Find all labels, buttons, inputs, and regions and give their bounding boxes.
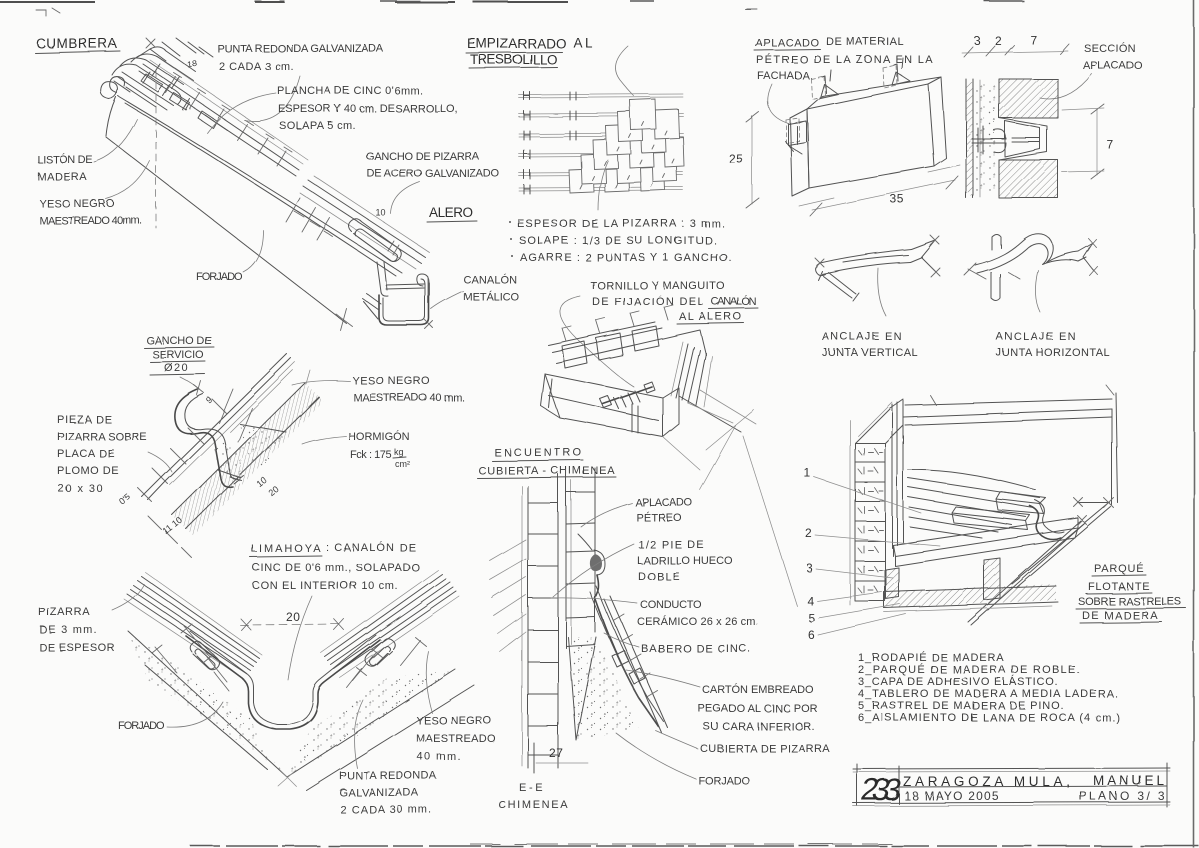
svg-text:CHIMENEA: CHIMENEA <box>498 799 568 811</box>
svg-text:APLACADO: APLACADO <box>1083 60 1143 72</box>
svg-text:7: 7 <box>1030 33 1037 47</box>
svg-text:APLACADO: APLACADO <box>755 37 819 49</box>
svg-text:2 CADA 3 cm.: 2 CADA 3 cm. <box>219 61 294 73</box>
svg-text:35: 35 <box>890 192 905 206</box>
svg-text:FORJADO: FORJADO <box>698 775 750 787</box>
svg-text:3: 3 <box>806 561 813 575</box>
svg-text:PIZARRA: PIZARRA <box>38 606 90 618</box>
svg-text:DE ACERO GALVANIZADO: DE ACERO GALVANIZADO <box>367 168 500 180</box>
svg-text:CON EL INTERIOR 10 cm.: CON EL INTERIOR 10 cm. <box>252 580 398 592</box>
svg-text:25: 25 <box>729 152 744 166</box>
svg-text:2: 2 <box>805 526 812 540</box>
svg-text:1: 1 <box>804 466 811 480</box>
svg-text:ESPESOR DE LA PIZARRA : 3 mm.: ESPESOR DE LA PIZARRA : 3 mm. <box>517 218 725 230</box>
svg-text:CUMBRERA: CUMBRERA <box>36 36 118 51</box>
svg-text:7: 7 <box>1106 137 1113 151</box>
svg-text:DE MADERA: DE MADERA <box>1082 610 1158 622</box>
svg-text:2 CADA 30 mm.: 2 CADA 30 mm. <box>340 804 432 816</box>
svg-text:CANALÓN: CANALÓN <box>711 295 757 308</box>
svg-text:PUNTA REDONDA GALVANIZADA: PUNTA REDONDA GALVANIZADA <box>217 43 384 55</box>
svg-text:JUNTA HORIZONTAL: JUNTA HORIZONTAL <box>996 347 1110 359</box>
svg-text:DE FIJACIÓN DEL: DE FIJACIÓN DEL <box>592 295 704 308</box>
svg-text:: CANALÓN DE: : CANALÓN DE <box>326 541 416 554</box>
svg-text:GANCHO DE: GANCHO DE <box>146 335 212 347</box>
svg-text:PIEZA DE: PIEZA DE <box>57 414 112 426</box>
svg-text:PEGADO AL CINC POR: PEGADO AL CINC POR <box>698 703 818 715</box>
svg-text:CANALÓN: CANALÓN <box>463 273 517 286</box>
svg-text:FORJADO: FORJADO <box>196 271 243 283</box>
svg-text:PLANO 3/ 3: PLANO 3/ 3 <box>1079 789 1165 803</box>
svg-text:20 x 30: 20 x 30 <box>58 483 103 495</box>
svg-text:E-E: E-E <box>519 782 543 794</box>
svg-text:FLOTANTE: FLOTANTE <box>1088 581 1150 593</box>
svg-text:Fck : 175: Fck : 175 <box>350 449 392 461</box>
svg-text:DE ESPESOR: DE ESPESOR <box>39 642 115 654</box>
svg-text:PLACA DE: PLACA DE <box>57 448 115 460</box>
svg-text:TORNILLO Y MANGUITO: TORNILLO Y MANGUITO <box>590 280 725 292</box>
svg-text:YESO NEGRO: YESO NEGRO <box>39 198 115 210</box>
svg-text:HORMIGÓN: HORMIGÓN <box>348 430 410 443</box>
svg-text:ESPESOR Y 40 cm. DESARROLLO,: ESPESOR Y 40 cm. DESARROLLO, <box>278 103 458 115</box>
svg-text:5_RASTREL DE MADERA DE PINO.: 5_RASTREL DE MADERA DE PINO. <box>858 700 1064 712</box>
svg-text:4: 4 <box>807 594 814 608</box>
svg-text:AGARRE : 2 PUNTAS Y 1 GANCHO.: AGARRE : 2 PUNTAS Y 1 GANCHO. <box>520 252 732 264</box>
svg-text:1/2 PIE DE: 1/2 PIE DE <box>638 539 704 551</box>
svg-text:TRESBOLILLO: TRESBOLILLO <box>470 52 558 67</box>
svg-text:BABERO DE CINC.: BABERO DE CINC. <box>641 643 751 655</box>
svg-text:GANCHO DE PIZARRA: GANCHO DE PIZARRA <box>366 151 480 163</box>
svg-text:SU CARA INFERIOR.: SU CARA INFERIOR. <box>703 721 815 733</box>
svg-text:CUBIERTA DE PIZARRA: CUBIERTA DE PIZARRA <box>700 743 830 755</box>
svg-text:DE MATERIAL: DE MATERIAL <box>826 36 904 48</box>
svg-text:AL: AL <box>573 35 593 50</box>
svg-text:FORJADO: FORJADO <box>118 720 165 732</box>
svg-text:DOBLE: DOBLE <box>638 571 680 583</box>
svg-text:EMPIZARRADO: EMPIZARRADO <box>467 36 567 51</box>
svg-text:FACHADA.: FACHADA. <box>757 70 813 82</box>
svg-text:MADERA: MADERA <box>37 171 87 183</box>
svg-text:METÁLICO: METÁLICO <box>463 290 519 303</box>
svg-text:10: 10 <box>376 208 386 218</box>
svg-text:2: 2 <box>995 34 1002 48</box>
svg-text:CONDUCTO: CONDUCTO <box>640 599 702 611</box>
svg-text:CERÁMICO 26 x 26 cm.: CERÁMICO 26 x 26 cm. <box>637 615 759 628</box>
svg-text:1_RODAPIÉ DE MADERA: 1_RODAPIÉ DE MADERA <box>858 651 1004 664</box>
svg-text:PARQUÉ: PARQUÉ <box>1094 562 1144 575</box>
svg-text:2_PARQUÉ DE MADERA DE ROBLE.: 2_PARQUÉ DE MADERA DE ROBLE. <box>858 663 1080 676</box>
svg-text:PLOMO DE: PLOMO DE <box>57 465 119 477</box>
svg-text:cm²: cm² <box>395 459 410 469</box>
svg-text:CARTÓN EMBREADO: CARTÓN EMBREADO <box>702 683 814 696</box>
svg-text:6_AISLAMIENTO DE LANA DE ROCA: 6_AISLAMIENTO DE LANA DE ROCA (4 cm.) <box>858 712 1120 724</box>
svg-text:ANCLAJE EN: ANCLAJE EN <box>822 331 902 343</box>
svg-text:ZARAGOZA MULA,: ZARAGOZA MULA, <box>903 774 1071 789</box>
svg-text:SERVICIO: SERVICIO <box>152 349 204 361</box>
svg-text:ENCUENTRO: ENCUENTRO <box>494 447 582 459</box>
svg-text:5: 5 <box>808 611 815 625</box>
svg-text:Ø20: Ø20 <box>164 362 188 374</box>
svg-text:YESO NEGRO: YESO NEGRO <box>416 715 492 727</box>
svg-text:MANUEL: MANUEL <box>1093 773 1165 788</box>
svg-text:ANCLAJE EN: ANCLAJE EN <box>996 331 1076 343</box>
svg-text:233: 233 <box>859 772 905 807</box>
svg-text:20: 20 <box>286 610 301 624</box>
svg-text:SOLAPA 5 cm.: SOLAPA 5 cm. <box>279 120 356 132</box>
svg-text:GALVANIZADA: GALVANIZADA <box>339 787 419 799</box>
svg-text:CINC DE 0'6 mm., SOLAPADO: CINC DE 0'6 mm., SOLAPADO <box>252 562 420 574</box>
svg-text:kg: kg <box>394 447 404 457</box>
svg-text:MAESTREADO: MAESTREADO <box>416 733 496 745</box>
svg-text:YESO NEGRO: YESO NEGRO <box>352 375 430 387</box>
svg-text:18: 18 <box>186 58 198 70</box>
svg-text:PÉTREO: PÉTREO <box>636 511 682 524</box>
svg-text:APLACADO: APLACADO <box>635 497 693 509</box>
svg-text:PLANCHA DE CINC 0'6mm.: PLANCHA DE CINC 0'6mm. <box>277 85 423 97</box>
svg-text:SECCIÓN: SECCIÓN <box>1084 42 1136 55</box>
svg-text:DE 3 mm.: DE 3 mm. <box>39 624 97 636</box>
svg-text:JUNTA VERTICAL: JUNTA VERTICAL <box>822 347 918 359</box>
svg-text:SOBRE RASTRELES: SOBRE RASTRELES <box>1078 596 1182 608</box>
svg-text:3_CAPA DE ADHESIVO ELÁSTICO.: 3_CAPA DE ADHESIVO ELÁSTICO. <box>858 675 1058 688</box>
svg-text:MAESTREADO 40mm.: MAESTREADO 40mm. <box>39 215 143 227</box>
svg-text:PUNTA REDONDA: PUNTA REDONDA <box>339 770 437 782</box>
svg-text:LISTÓN DE: LISTÓN DE <box>37 153 93 166</box>
svg-text:LIMAHOYA: LIMAHOYA <box>251 543 321 555</box>
svg-text:40 mm.: 40 mm. <box>417 751 461 763</box>
svg-text:3: 3 <box>974 34 981 48</box>
svg-text:MAESTREADO 40 mm.: MAESTREADO 40 mm. <box>353 392 465 404</box>
svg-text:PIZARRA SOBRE: PIZARRA SOBRE <box>57 431 147 443</box>
svg-text:AL ALERO: AL ALERO <box>679 311 742 323</box>
svg-text:ALERO: ALERO <box>429 205 474 220</box>
svg-text:18 MAYO 2005: 18 MAYO 2005 <box>904 789 999 803</box>
svg-text:4_TABLERO DE MADERA A MEDIA LA: 4_TABLERO DE MADERA A MEDIA LADERA. <box>858 688 1118 700</box>
svg-text:6: 6 <box>808 628 815 642</box>
svg-text:27: 27 <box>549 746 564 760</box>
svg-text:LADRILLO HUECO: LADRILLO HUECO <box>637 555 733 567</box>
svg-text:SOLAPE : 1/3 DE SU LONGITUD.: SOLAPE : 1/3 DE SU LONGITUD. <box>519 235 717 247</box>
svg-text:PÉTREO DE LA ZONA EN LA: PÉTREO DE LA ZONA EN LA <box>756 53 933 66</box>
